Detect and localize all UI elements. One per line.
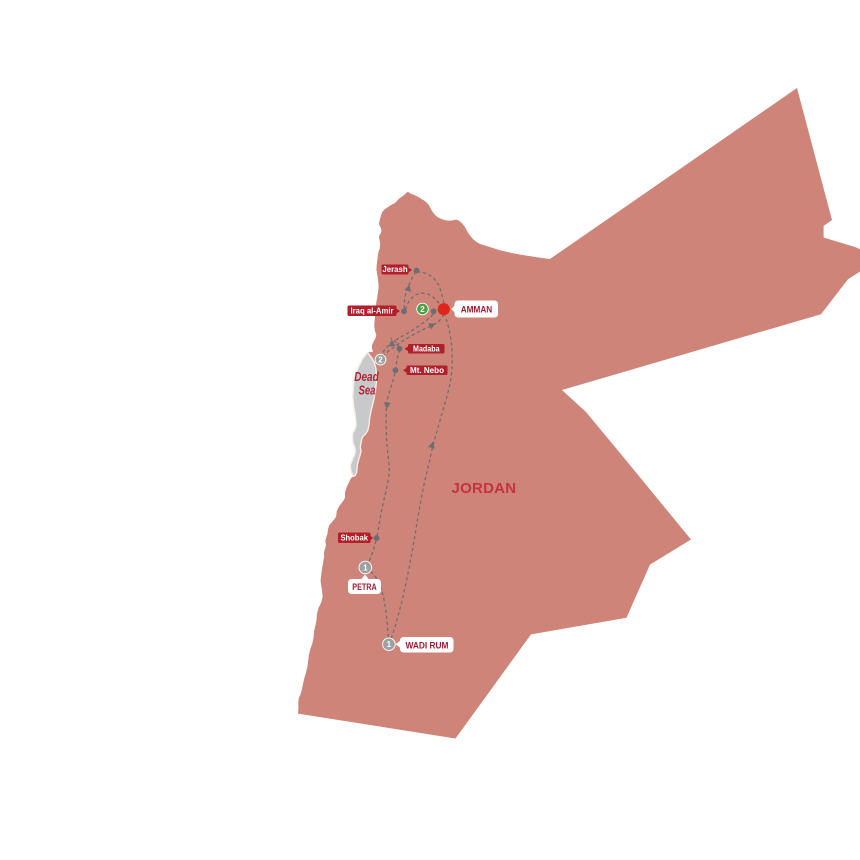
svg-text:Shobak: Shobak xyxy=(340,533,368,542)
svg-text:1: 1 xyxy=(363,564,368,573)
svg-text:Madaba: Madaba xyxy=(413,344,440,353)
svg-text:Mt. Nebo: Mt. Nebo xyxy=(410,366,444,375)
svg-text:JORDAN: JORDAN xyxy=(452,480,517,497)
svg-text:PETRA: PETRA xyxy=(352,582,377,592)
svg-text:2: 2 xyxy=(378,356,383,365)
svg-text:Iraq al-Amir: Iraq al-Amir xyxy=(351,306,394,315)
svg-text:1: 1 xyxy=(387,640,392,649)
svg-text:Sea: Sea xyxy=(359,383,376,398)
svg-text:WADI RUM: WADI RUM xyxy=(406,640,449,650)
svg-text:Jerash: Jerash xyxy=(382,265,407,274)
svg-text:AMMAN: AMMAN xyxy=(461,305,493,316)
svg-text:2: 2 xyxy=(420,305,425,314)
